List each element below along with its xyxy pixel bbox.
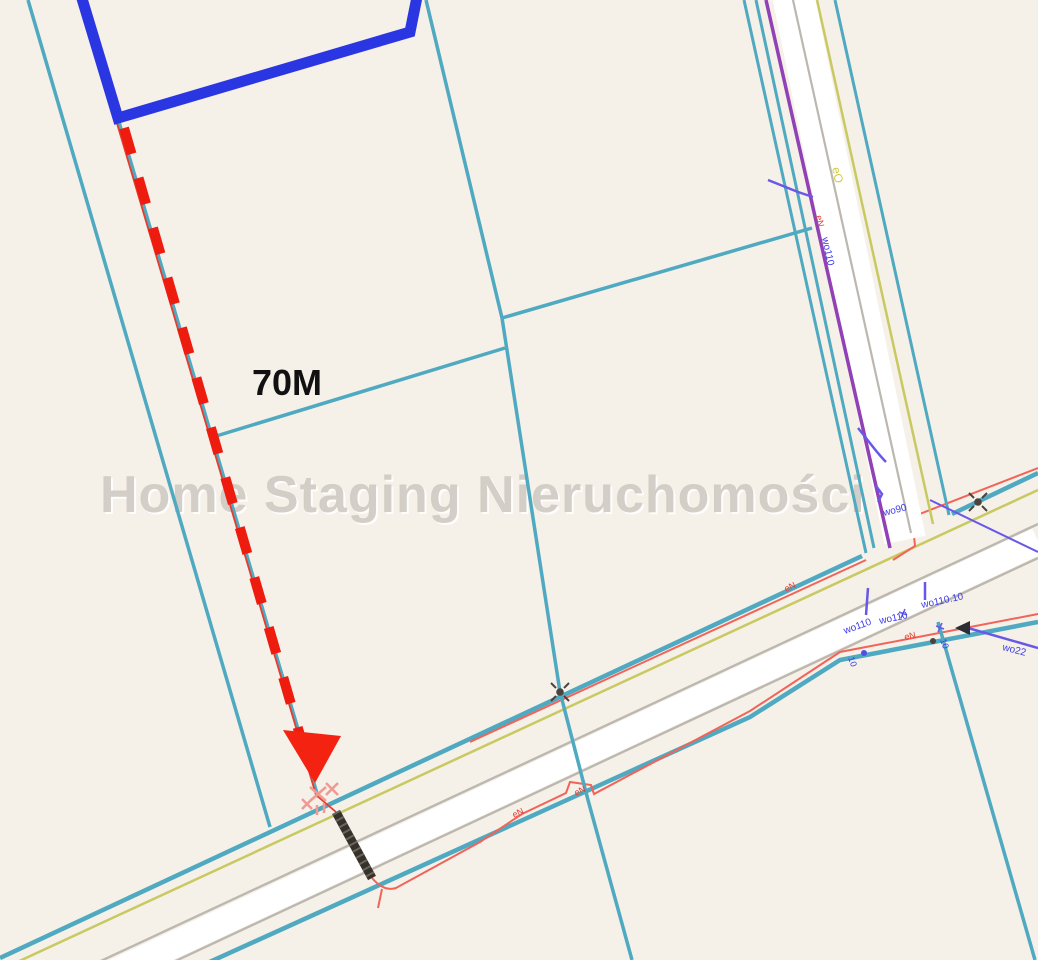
distance-label: 70M (252, 362, 322, 403)
map-canvas: Home Staging Nieruchomości Home Staging … (0, 0, 1038, 960)
cadastral-map: Home Staging Nieruchomości Home Staging … (0, 0, 1038, 960)
survey-dot (930, 638, 936, 644)
valve-dot-blue (861, 650, 867, 656)
watermark: Home Staging Nieruchomości (100, 466, 866, 524)
